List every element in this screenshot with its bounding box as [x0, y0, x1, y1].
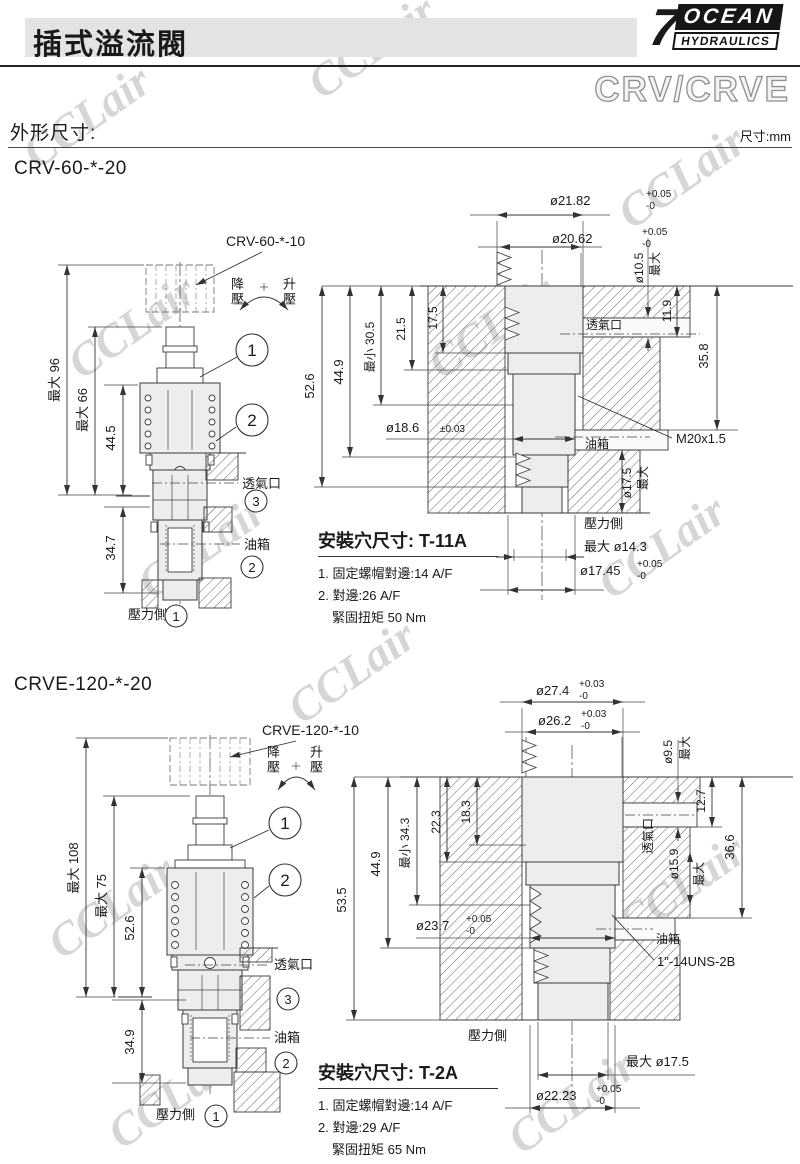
crv-seat-dia: 最大 ø14.3	[584, 539, 647, 554]
crve-install-note3: 緊固扭矩 65 Nm	[318, 1139, 498, 1161]
crve-step1: 18.3	[459, 800, 473, 824]
crv-bore-tol: ±0.03	[440, 424, 465, 435]
crv-cartridge-label: CRV-60-*-10	[226, 233, 305, 249]
crve-install-title: 安裝穴尺寸:	[318, 1063, 414, 1083]
tol: -0	[642, 239, 651, 250]
crve-cavity-top-dia2: ø26.2	[538, 713, 571, 728]
unit-note: 尺寸:mm	[740, 126, 791, 145]
tol: -0	[581, 721, 590, 732]
crv-spigot-dia: ø17.5	[620, 467, 634, 498]
crve-bore-dia: ø23.7	[416, 918, 449, 933]
tol: +0.05	[466, 914, 492, 925]
crve-port-1: 1	[212, 1109, 219, 1124]
crv-vent-depth: 11.9	[660, 299, 674, 322]
crve-seat-dia: 最大 ø17.5	[626, 1054, 689, 1069]
crve-tank-label: 油箱	[274, 1030, 300, 1045]
tol: -0	[579, 691, 588, 702]
crve-port-2: 2	[282, 1056, 289, 1071]
brand-logo: 7 OCEAN HYDRAULICS	[647, 4, 784, 53]
page-title: 插式溢流閥	[33, 21, 188, 63]
crve-vent-dia-max: 最大	[678, 736, 692, 760]
crv-vent-dia: ø10.5	[632, 252, 646, 283]
tol: +0.03	[581, 709, 607, 720]
section-title: 外形尺寸:	[10, 118, 96, 145]
crve-install-note2: 2. 對邊:29 A/F	[318, 1117, 498, 1139]
crv-dim-nose-len: 34.7	[103, 535, 118, 560]
crve-install-code: T-2A	[419, 1063, 458, 1083]
crv-port-2: 2	[248, 560, 255, 575]
crve-valve-drawing: CRVE-120-*-10 透氣口 3 油箱 2 壓力側 1 1 2 最大 10…	[66, 722, 359, 1127]
section-rule	[8, 147, 792, 148]
crve-pressure-label: 壓力側	[156, 1107, 195, 1122]
crve-callout-2: 2	[280, 871, 289, 890]
crv-thread-label: M20x1.5	[676, 431, 726, 446]
crve-vent-depth: 12.7	[694, 789, 708, 813]
crv-install-note2: 2. 對邊:26 A/F	[318, 585, 498, 607]
crve-step5: 53.5	[334, 887, 349, 912]
logo-name: OCEAN	[675, 4, 783, 30]
crve-dim-nose-len: 34.9	[122, 1029, 137, 1054]
tol: +0.03	[579, 679, 605, 690]
crv-step3: 最小 30.5	[363, 321, 377, 372]
crv-step5: 52.6	[302, 373, 317, 398]
crv-step1: 17.5	[426, 306, 440, 330]
crve-cavity-tank-label: 油箱	[656, 931, 680, 946]
tol: +0.05	[637, 559, 663, 570]
crve-install-block: 安裝穴尺寸: T-2A 1. 固定螺帽對邊:14 A/F 2. 對邊:29 A/…	[318, 1059, 498, 1161]
crve-port-3: 3	[284, 992, 291, 1007]
crv-install-code: T-11A	[419, 531, 467, 551]
crv-install-block: 安裝穴尺寸: T-11A 1. 固定螺帽對邊:14 A/F 2. 對邊:26 A…	[318, 527, 498, 629]
crve-install-note1: 1. 固定螺帽對邊:14 A/F	[318, 1095, 498, 1117]
crv-cavity-vent-label: 透氣口	[586, 318, 622, 332]
crve-port-dia: ø15.9	[667, 848, 681, 879]
crv-dim-max-body: 最大 66	[75, 388, 90, 432]
logo-sub: HYDRAULICS	[672, 32, 779, 50]
crve-cavity-vent-label: 透氣口	[641, 818, 655, 854]
tol: -0	[637, 571, 646, 582]
crv-cavity-top-dia1: ø21.82	[550, 193, 590, 208]
crve-cavity-pressure-label: 壓力側	[468, 1028, 507, 1043]
crve-step4: 44.9	[368, 851, 383, 876]
crv-vent-dia-max: 最大	[648, 252, 662, 276]
crve-tank-depth: 36.6	[722, 834, 737, 859]
crv-cavity-tank-label: 油箱	[585, 436, 609, 451]
crve-cavity-top-dia1: ø27.4	[536, 683, 569, 698]
crve-callout-1: 1	[280, 814, 289, 833]
crv-cavity-top-dia2: ø20.62	[552, 231, 592, 246]
crv-exit-dia: ø17.45	[580, 563, 620, 578]
crve-step3: 最小 34.3	[398, 817, 412, 868]
series-title: CRV/CRVE	[594, 70, 790, 110]
crv-pressure-label: 壓力側	[128, 607, 167, 622]
crve-vent-label: 透氣口	[274, 957, 313, 972]
crve-vent-dia: ø9.5	[661, 740, 675, 764]
header-rule	[0, 65, 800, 67]
crv-vent-label: 透氣口	[242, 476, 281, 491]
crve-port-dia-max: 最大	[692, 862, 706, 886]
crv-callout-2: 2	[247, 411, 256, 430]
tol: -0	[596, 1096, 605, 1107]
crve-dim-body-len: 52.6	[122, 915, 137, 940]
crv-port-1: 1	[172, 609, 179, 624]
crv-install-note1: 1. 固定螺帽對邊:14 A/F	[318, 563, 498, 585]
crv-install-note3: 緊固扭矩 50 Nm	[318, 607, 498, 629]
crv-step2: 21.5	[394, 317, 408, 341]
crv-bore-dia: ø18.6	[386, 420, 419, 435]
crv-port-3: 3	[252, 494, 259, 509]
tol: -0	[466, 926, 475, 937]
crv-step4: 44.9	[331, 359, 346, 384]
crv-cavity-pressure-label: 壓力側	[584, 516, 623, 531]
crve-cavity-drawing: ø27.4 +0.03 -0 ø26.2 +0.03 -0 透氣口 ø9.5 最…	[334, 679, 793, 1113]
crv-dim-max-height: 最大 96	[47, 358, 62, 402]
tol: +0.05	[596, 1084, 622, 1095]
crv-dim-body-len: 44.5	[103, 425, 118, 450]
crve-step2: 22.3	[429, 810, 443, 834]
crv-valve-drawing: CRV-60-*-10 透氣口 3 油箱 2 壓力側 1 1 2 最大 96 最…	[47, 233, 305, 627]
crve-dim-max-height: 最大 108	[66, 842, 81, 893]
crve-dim-max-body: 最大 75	[94, 874, 109, 918]
crv-install-title: 安裝穴尺寸:	[318, 531, 414, 551]
tol: +0.05	[646, 189, 672, 200]
tol: +0.05	[642, 227, 668, 238]
crv-tank-label: 油箱	[244, 537, 270, 552]
tol: -0	[646, 201, 655, 212]
crv-tank-depth: 35.8	[696, 343, 711, 368]
crv-callout-1: 1	[247, 341, 256, 360]
crve-cartridge-label: CRVE-120-*-10	[262, 722, 359, 738]
technical-drawings: CRV-60-*-10 透氣口 3 油箱 2 壓力側 1 1 2 最大 96 最…	[0, 155, 800, 1152]
crve-thread-label: 1"-14UNS-2B	[657, 954, 735, 969]
crv-spigot-max: 最大	[636, 466, 650, 490]
crve-exit-dia: ø22.23	[536, 1088, 576, 1103]
